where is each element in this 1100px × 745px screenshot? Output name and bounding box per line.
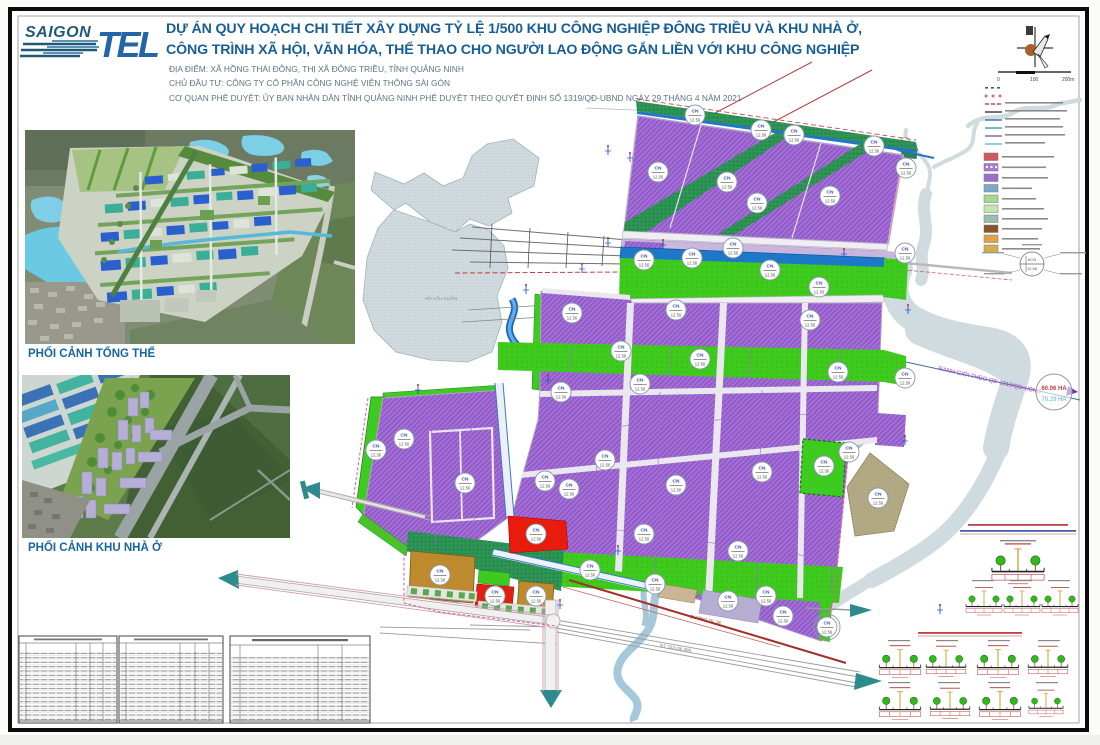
svg-text:CHỦ ĐẦU TƯ: CÔNG TY CỔ PHẦN CÔ: CHỦ ĐẦU TƯ: CÔNG TY CỔ PHẦN CÔNG NGHỆ VI… <box>169 77 450 88</box>
svg-text:HỒ CẦU CUỐN: HỒ CẦU CUỐN <box>425 295 457 301</box>
svg-text:200m: 200m <box>1062 77 1075 83</box>
svg-text:CÔNG TRÌNH XÃ HỘI, VĂN HÓA, TH: CÔNG TRÌNH XÃ HỘI, VĂN HÓA, THỂ THAO CHO… <box>166 40 859 58</box>
svg-text:70.29 HA: 70.29 HA <box>1041 397 1066 403</box>
svg-text:DỰ ÁN QUY HOẠCH CHI TIẾT XÂY D: DỰ ÁN QUY HOẠCH CHI TIẾT XÂY DỰNG TỶ LỆ … <box>166 19 862 37</box>
svg-text:60.06 HA: 60.06 HA <box>1041 386 1067 392</box>
svg-text:12.56: 12.56 <box>1027 266 1038 271</box>
svg-text:PHỐI CẢNH KHU NHÀ Ở: PHỐI CẢNH KHU NHÀ Ở <box>28 540 162 554</box>
svg-text:KCN: KCN <box>1028 257 1037 262</box>
svg-text:0: 0 <box>997 77 1000 83</box>
svg-text:ĐỊA ĐIỂM: XÃ HỒNG THÁI ĐÔNG, T: ĐỊA ĐIỂM: XÃ HỒNG THÁI ĐÔNG, THỊ XÃ ĐÔNG… <box>169 63 464 74</box>
svg-text:TEL: TEL <box>97 24 158 65</box>
svg-text:PHỐI CẢNH TỔNG THỂ: PHỐI CẢNH TỔNG THỂ <box>28 346 155 360</box>
svg-text:100: 100 <box>1030 77 1039 83</box>
svg-text:SAIGON: SAIGON <box>25 24 91 41</box>
